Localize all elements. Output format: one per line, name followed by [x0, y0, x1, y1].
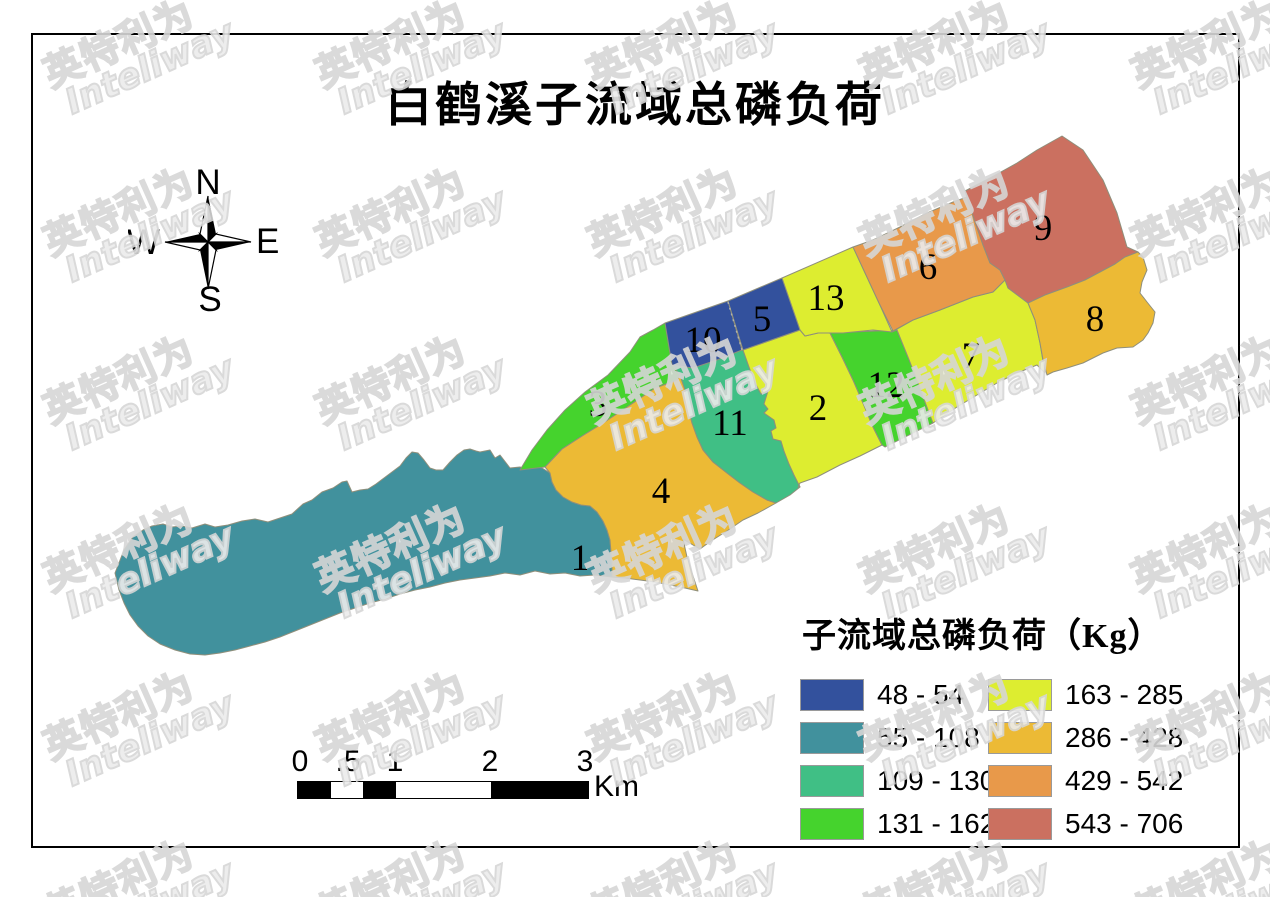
legend-label: 286 - 428 [1065, 722, 1183, 754]
scale-label-05: .5 [335, 745, 360, 779]
region-label-13: 13 [808, 278, 845, 319]
north-arrow: N E S W [128, 158, 298, 328]
legend-title: 子流域总磷负荷（Kg） [802, 608, 1180, 657]
region-label-7: 7 [962, 336, 981, 377]
compass-s-label: S [198, 280, 221, 319]
region-label-8: 8 [1086, 299, 1105, 340]
scale-label-2: 2 [482, 745, 499, 779]
legend-swatch [800, 808, 864, 840]
scale-bar [297, 781, 589, 799]
compass-e-label: E [256, 222, 279, 261]
legend-swatch [988, 808, 1052, 840]
region-label-12: 12 [868, 365, 905, 406]
compass-n-label: N [195, 163, 220, 202]
legend-item: 109 - 130 [800, 759, 988, 802]
legend-label: 109 - 130 [877, 765, 995, 797]
legend-label: 429 - 542 [1065, 765, 1183, 797]
legend-label: 543 - 706 [1065, 808, 1183, 840]
region-label-9: 9 [1034, 208, 1053, 249]
map-document: 白鹤溪子流域总磷负荷 1 2 3 4 5 6 [0, 0, 1270, 897]
scale-segment [396, 782, 491, 798]
map-region-1 [115, 449, 612, 655]
legend-swatch [800, 679, 864, 711]
legend-column-left: 48 - 54 55 - 108 109 - 130 131 - 162 [800, 673, 988, 845]
region-label-10: 10 [685, 320, 722, 361]
region-label-4: 4 [652, 471, 671, 512]
legend-item: 163 - 285 [988, 673, 1176, 716]
legend-label: 131 - 162 [877, 808, 995, 840]
legend-label: 163 - 285 [1065, 679, 1183, 711]
legend-swatch [800, 722, 864, 754]
legend-item: 131 - 162 [800, 802, 988, 845]
legend-item: 55 - 108 [800, 716, 988, 759]
legend-item: 543 - 706 [988, 802, 1176, 845]
legend-label: 55 - 108 [877, 722, 980, 754]
region-label-6: 6 [919, 247, 938, 288]
scale-label-1: 1 [387, 745, 404, 779]
region-label-11: 11 [712, 403, 748, 444]
legend-item: 429 - 542 [988, 759, 1176, 802]
scale-label-0: 0 [292, 745, 309, 779]
legend-swatch [988, 765, 1052, 797]
legend-swatch [988, 722, 1052, 754]
legend-item: 286 - 428 [988, 716, 1176, 759]
legend-swatch [800, 765, 864, 797]
region-label-2: 2 [809, 388, 828, 429]
region-label-3: 3 [589, 384, 608, 425]
legend: 子流域总磷负荷（Kg） 48 - 54 55 - 108 109 - 130 1… [800, 608, 1180, 845]
scale-segment [363, 782, 396, 798]
scale-segment [331, 782, 363, 798]
scale-segment [491, 782, 588, 798]
legend-label: 48 - 54 [877, 679, 964, 711]
legend-columns: 48 - 54 55 - 108 109 - 130 131 - 162 [800, 673, 1180, 845]
legend-item: 48 - 54 [800, 673, 988, 716]
region-label-1: 1 [571, 538, 590, 579]
legend-column-right: 163 - 285 286 - 428 429 - 542 543 - 706 [988, 673, 1176, 845]
region-label-5: 5 [753, 299, 772, 340]
legend-swatch [988, 679, 1052, 711]
scale-label-3: 3 [577, 745, 594, 779]
scale-segment [298, 782, 331, 798]
scale-unit-label: Km [594, 770, 639, 804]
compass-w-label: W [128, 223, 160, 262]
